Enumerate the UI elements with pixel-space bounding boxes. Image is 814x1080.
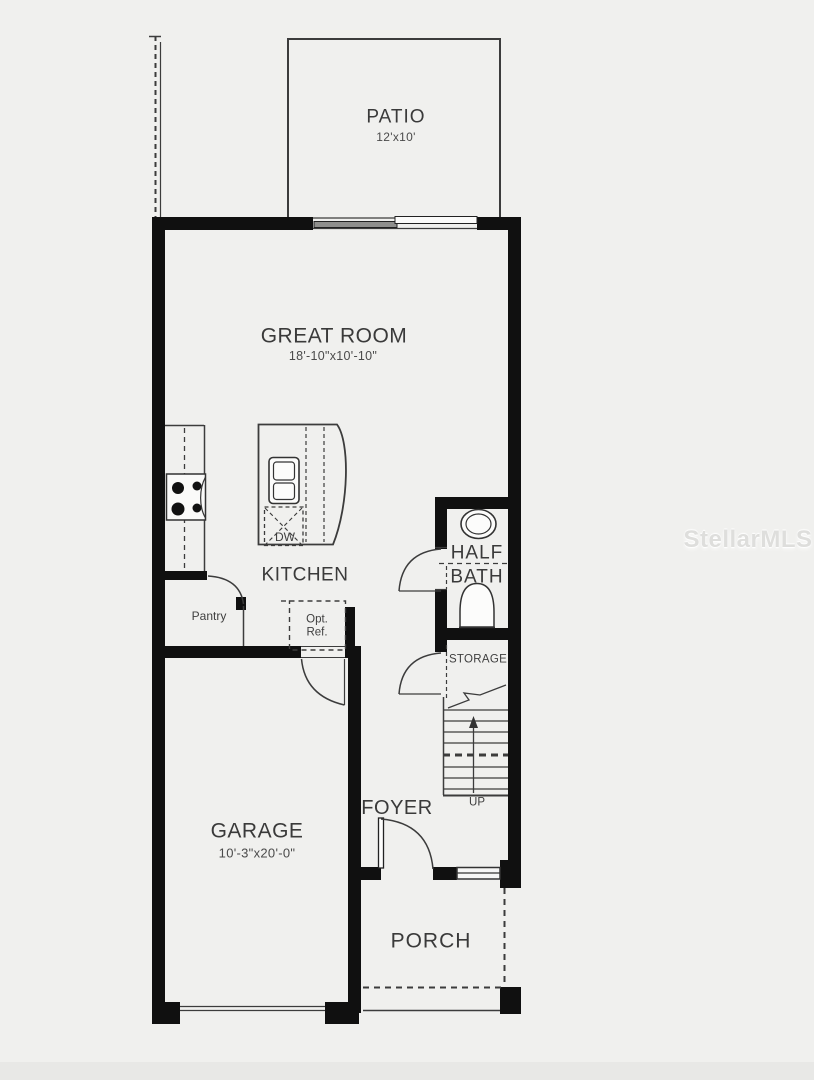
dishwasher-label: DW bbox=[275, 531, 295, 543]
foyer-label: FOYER bbox=[361, 798, 432, 818]
sliding-door bbox=[313, 217, 477, 229]
porch-label: PORCH bbox=[391, 931, 472, 952]
garage-dims: 10'-3"x20'-0" bbox=[219, 847, 296, 860]
porch-window bbox=[457, 868, 500, 880]
wall-segment bbox=[152, 217, 313, 230]
opt-ref-label-line1: Opt. bbox=[306, 614, 328, 626]
opt-ref-label-line2: Ref. bbox=[306, 627, 327, 639]
door-arc bbox=[399, 653, 441, 694]
wall-segment bbox=[348, 646, 361, 1013]
half-bath-label-line1: HALF bbox=[451, 544, 504, 563]
break-line bbox=[448, 685, 506, 708]
half-bath-label-line2: BATH bbox=[450, 568, 503, 587]
front-door bbox=[379, 818, 434, 869]
up-arrow-head bbox=[469, 716, 478, 728]
wall-segment bbox=[152, 646, 301, 658]
wall-post bbox=[500, 987, 521, 1014]
pantry-label: Pantry bbox=[192, 610, 227, 622]
garage-door bbox=[180, 1007, 325, 1011]
storage-label: STORAGE bbox=[449, 654, 507, 666]
patio-outline bbox=[288, 39, 500, 217]
patio-dims: 12'x10' bbox=[376, 131, 415, 143]
great-room-label: GREAT ROOM bbox=[261, 326, 408, 347]
garage-entry-door bbox=[301, 647, 345, 706]
floor-plan-image: PATIO 12'x10' GREAT ROOM 18'-10"x10'-10"… bbox=[0, 0, 814, 1080]
great-room-dims: 18'-10"x10'-10" bbox=[289, 350, 377, 363]
wall-segment bbox=[152, 571, 207, 580]
garage-label: GARAGE bbox=[211, 821, 304, 842]
toilet-icon bbox=[459, 584, 495, 628]
staircase bbox=[443, 697, 508, 796]
stellar-mls-watermark: StellarMLS bbox=[683, 526, 812, 554]
wall-post bbox=[433, 867, 457, 880]
wall-segment bbox=[500, 860, 521, 888]
door-arc bbox=[302, 659, 345, 705]
wall-segment bbox=[152, 217, 165, 1004]
wall-segment bbox=[435, 640, 447, 652]
wall-segment bbox=[508, 217, 521, 888]
wall-post bbox=[152, 1002, 180, 1024]
kitchen-label: KITCHEN bbox=[262, 566, 349, 585]
bath-sink-icon bbox=[461, 510, 496, 539]
kitchen-sink-icon bbox=[269, 458, 299, 504]
wall-post bbox=[236, 597, 246, 610]
door-leaf bbox=[379, 818, 384, 868]
up-label: UP bbox=[469, 797, 485, 809]
property-line bbox=[149, 36, 161, 217]
range-icon bbox=[167, 474, 206, 520]
wall-segment bbox=[435, 628, 515, 640]
door-arc bbox=[399, 549, 441, 591]
patio-label: PATIO bbox=[366, 108, 425, 127]
wall-post bbox=[345, 607, 355, 648]
wall-segment bbox=[348, 867, 381, 880]
door-arc bbox=[381, 819, 433, 869]
wall-segment bbox=[435, 497, 447, 549]
image-bottom-strip bbox=[0, 1062, 814, 1080]
